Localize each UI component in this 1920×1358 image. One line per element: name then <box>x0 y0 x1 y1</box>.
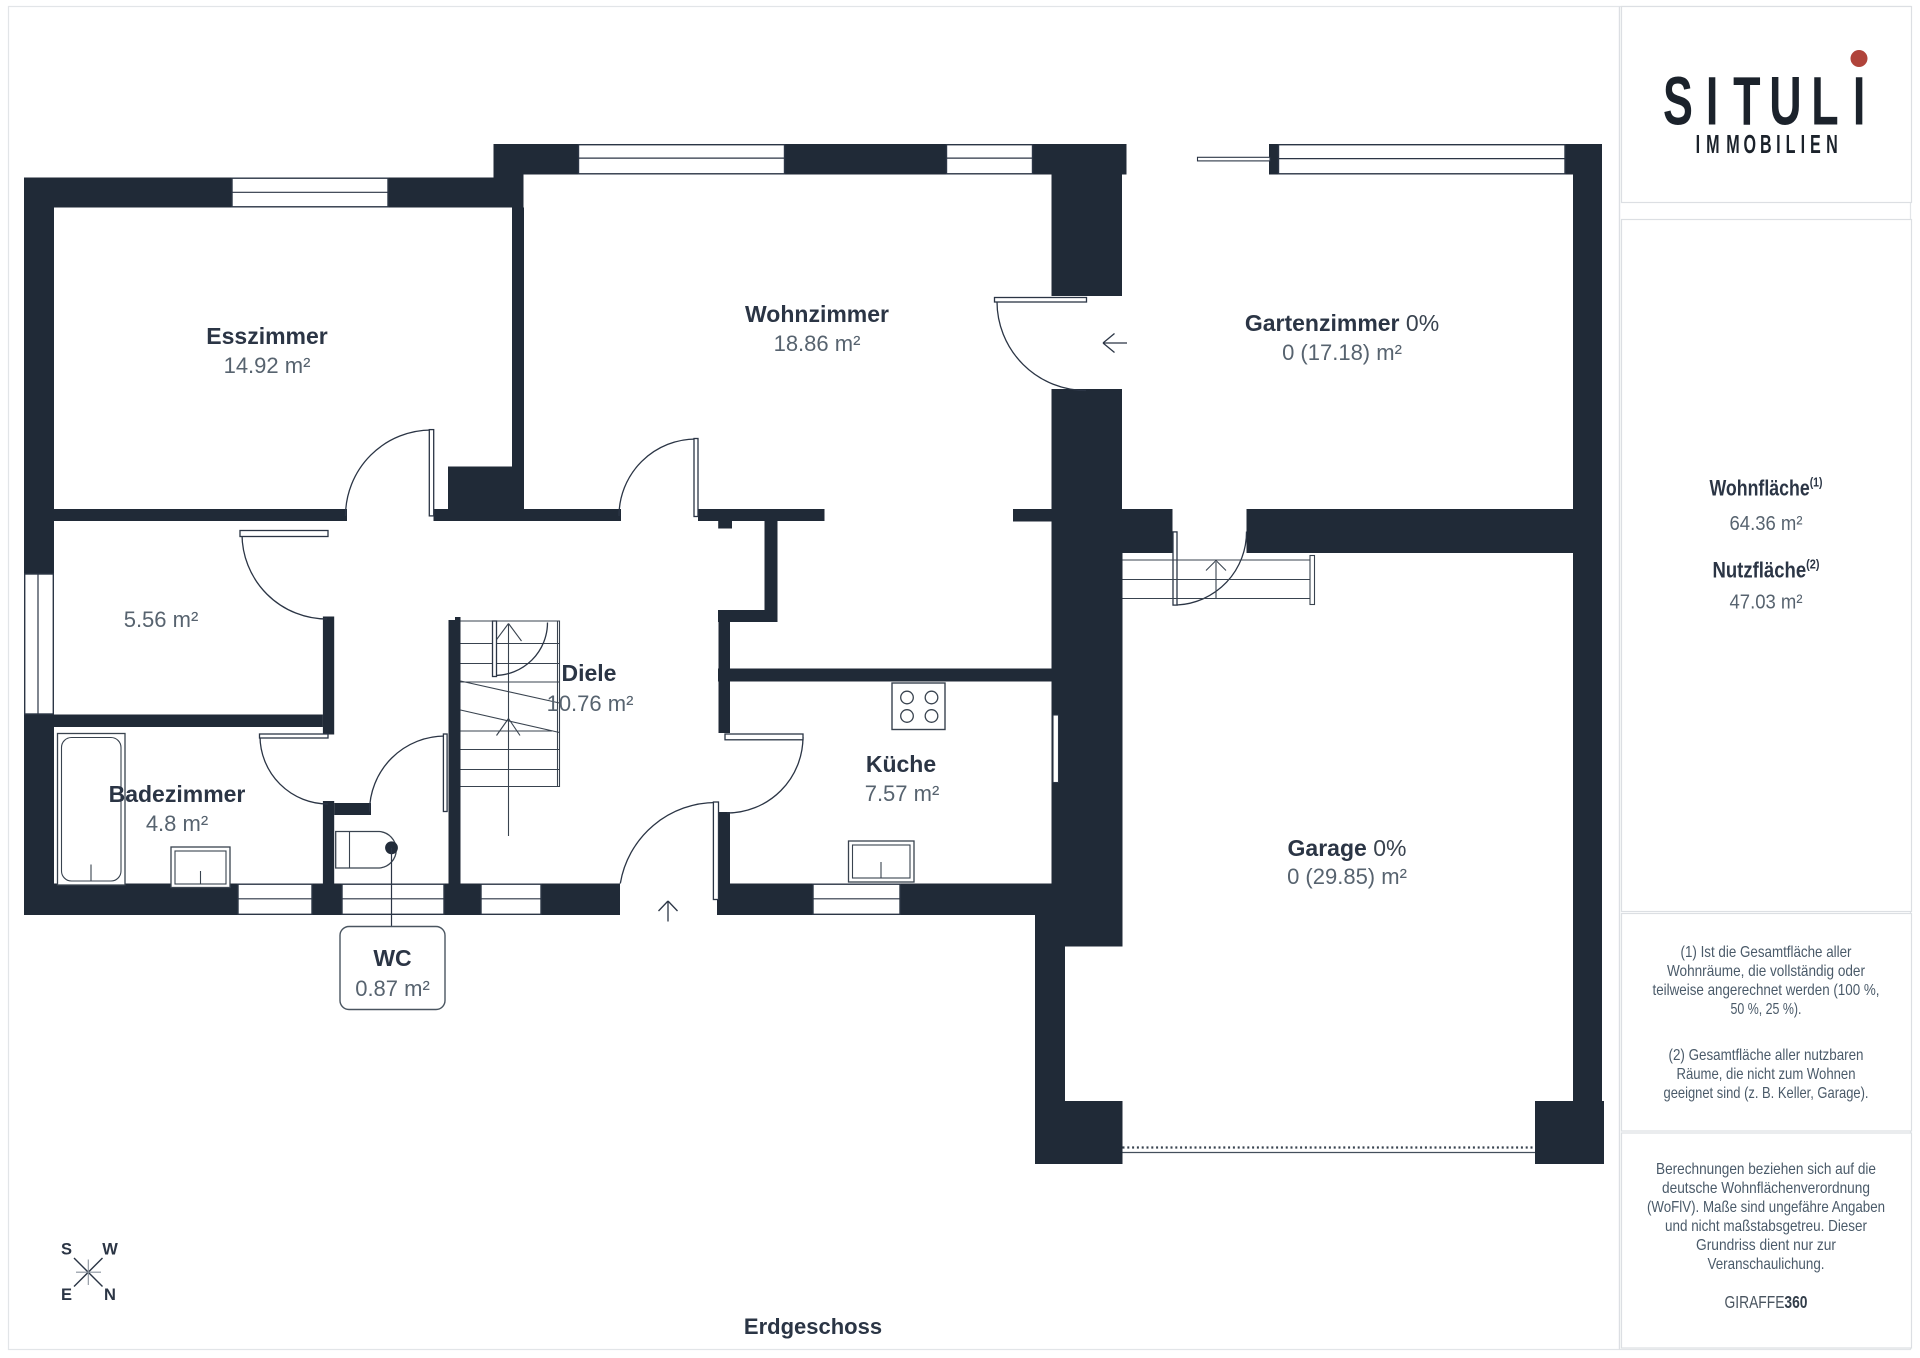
svg-text:Wohnfläche(1): Wohnfläche(1) <box>1710 475 1823 501</box>
svg-text:und nicht maßstabsgetreu. Dies: und nicht maßstabsgetreu. Dieser <box>1665 1218 1868 1235</box>
svg-text:18.86 m²: 18.86 m² <box>774 331 861 356</box>
svg-text:Wohnräume, die vollständig ode: Wohnräume, die vollständig oder <box>1667 963 1866 980</box>
svg-text:deutsche Wohnflächenverordnung: deutsche Wohnflächenverordnung <box>1662 1180 1870 1197</box>
svg-text:I: I <box>1853 63 1865 140</box>
svg-text:Küche: Küche <box>866 751 936 777</box>
svg-text:Diele: Diele <box>562 660 617 686</box>
svg-text:10.76 m²: 10.76 m² <box>547 691 634 716</box>
svg-text:O: O <box>1744 129 1757 159</box>
svg-text:E: E <box>1810 129 1821 159</box>
svg-text:teilweise angerechnet werden (: teilweise angerechnet werden (100 %, <box>1653 982 1880 999</box>
svg-text:I: I <box>1696 129 1700 159</box>
svg-text:I: I <box>1801 129 1805 159</box>
svg-text:4.8 m²: 4.8 m² <box>146 811 208 836</box>
svg-text:M: M <box>1706 129 1719 159</box>
svg-text:B: B <box>1760 129 1772 159</box>
svg-text:Nutzfläche(2): Nutzfläche(2) <box>1713 557 1820 583</box>
svg-text:(WoFlV). Maße sind ungefähre A: (WoFlV). Maße sind ungefähre Angaben <box>1647 1199 1885 1216</box>
svg-text:Berechnungen beziehen sich auf: Berechnungen beziehen sich auf die <box>1656 1161 1876 1178</box>
svg-text:M: M <box>1726 129 1739 159</box>
svg-text:Wohnzimmer: Wohnzimmer <box>745 301 889 327</box>
svg-text:14.92 m²: 14.92 m² <box>224 353 311 378</box>
svg-text:64.36 m²: 64.36 m² <box>1730 513 1803 535</box>
svg-text:Gartenzimmer 0%: Gartenzimmer 0% <box>1245 310 1439 336</box>
svg-text:Badezimmer: Badezimmer <box>109 781 246 807</box>
svg-text:Grundriss dient nur zur: Grundriss dient nur zur <box>1696 1237 1837 1254</box>
svg-text:S: S <box>1663 63 1693 140</box>
svg-text:L: L <box>1786 129 1796 159</box>
svg-text:E: E <box>61 1286 72 1304</box>
svg-text:(1) Ist die Gesamtfläche aller: (1) Ist die Gesamtfläche aller <box>1681 944 1853 961</box>
svg-text:Erdgeschoss: Erdgeschoss <box>744 1314 882 1339</box>
svg-text:N: N <box>104 1286 116 1304</box>
svg-text:0 (17.18) m²: 0 (17.18) m² <box>1282 340 1402 365</box>
svg-text:47.03 m²: 47.03 m² <box>1730 592 1803 614</box>
svg-text:0.87 m²: 0.87 m² <box>355 976 430 1001</box>
svg-text:50 %, 25 %).: 50 %, 25 %). <box>1731 1001 1802 1018</box>
svg-text:W: W <box>102 1241 118 1259</box>
svg-text:WC: WC <box>373 945 411 971</box>
svg-text:5.56 m²: 5.56 m² <box>124 607 199 632</box>
svg-text:N: N <box>1826 129 1838 159</box>
svg-text:I: I <box>1776 129 1780 159</box>
svg-text:GIRAFFE360: GIRAFFE360 <box>1725 1292 1808 1312</box>
svg-text:7.57 m²: 7.57 m² <box>865 781 940 806</box>
svg-text:Veranschaulichung.: Veranschaulichung. <box>1708 1256 1825 1273</box>
svg-text:(2) Gesamtfläche aller nutzbar: (2) Gesamtfläche aller nutzbaren <box>1669 1047 1864 1064</box>
svg-text:0 (29.85) m²: 0 (29.85) m² <box>1287 864 1407 889</box>
svg-text:Esszimmer: Esszimmer <box>206 323 328 349</box>
svg-text:Garage 0%: Garage 0% <box>1288 835 1407 861</box>
svg-text:Räume, die nicht zum Wohnen: Räume, die nicht zum Wohnen <box>1677 1066 1856 1083</box>
svg-text:S: S <box>61 1241 72 1259</box>
svg-text:geeignet sind (z. B. Keller, G: geeignet sind (z. B. Keller, Garage). <box>1664 1085 1869 1102</box>
